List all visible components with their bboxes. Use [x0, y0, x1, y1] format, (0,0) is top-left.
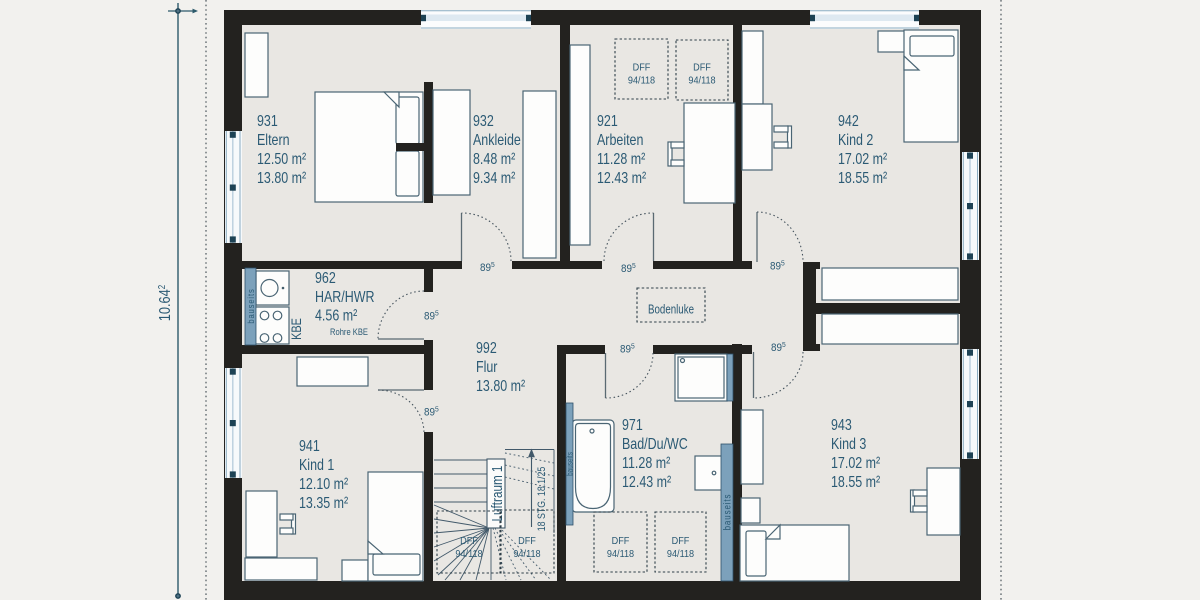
- svg-text:KBE: KBE: [289, 318, 305, 340]
- svg-text:bauseits: bauseits: [245, 288, 256, 323]
- svg-text:DFF: DFF: [518, 535, 536, 547]
- svg-text:94/118: 94/118: [667, 548, 695, 560]
- svg-text:94/118: 94/118: [688, 75, 716, 87]
- svg-text:Bodenluke: Bodenluke: [648, 303, 694, 316]
- svg-text:bauseits: bauseits: [722, 494, 733, 531]
- svg-text:DFF: DFF: [460, 535, 478, 547]
- svg-text:94/118: 94/118: [455, 548, 483, 560]
- svg-text:18 STG. 18.1/25: 18 STG. 18.1/25: [536, 466, 548, 531]
- svg-text:94/118: 94/118: [513, 548, 541, 560]
- svg-text:DFF: DFF: [672, 535, 690, 547]
- svg-text:DFF: DFF: [612, 535, 630, 547]
- svg-text:94/118: 94/118: [607, 548, 635, 560]
- svg-text:Rohre KBE: Rohre KBE: [330, 326, 368, 337]
- svg-text:10.642: 10.642: [156, 285, 174, 321]
- svg-text:bauseits: bauseits: [565, 452, 575, 476]
- svg-text:Luftraum 1: Luftraum 1: [489, 466, 506, 522]
- svg-text:DFF: DFF: [693, 62, 711, 74]
- svg-text:DFF: DFF: [633, 62, 651, 74]
- svg-text:94/118: 94/118: [628, 75, 656, 87]
